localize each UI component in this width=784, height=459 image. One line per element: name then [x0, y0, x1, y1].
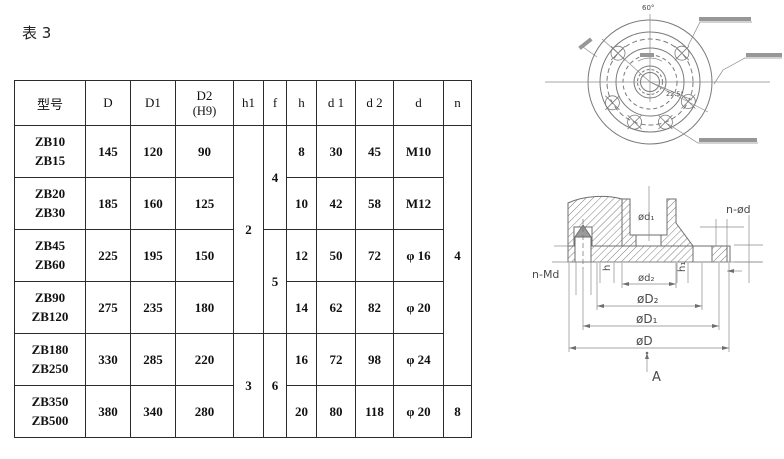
cell-d: φ 20 [394, 282, 444, 334]
angle-60-label: 60° [642, 4, 654, 12]
cell-D2: 280 [176, 386, 234, 438]
cell-f-merged: 6 [264, 334, 287, 438]
cell-h1-merged: 3 [234, 334, 264, 438]
cell-n-merged: 4 [444, 126, 472, 386]
table-row: ZB10 ZB15 145 120 90 2 4 8 30 45 M10 4 [15, 126, 472, 178]
col-header-n: n [444, 81, 472, 126]
cell-d: φ 20 [394, 386, 444, 438]
d2-dim-label: ød₂ [638, 273, 654, 284]
cell-f-merged: 4 [264, 126, 287, 230]
model-cell: ZB45 ZB60 [15, 230, 86, 282]
cell-D: 380 [86, 386, 131, 438]
table-row: ZB180 ZB250 330 285 220 3 6 16 72 98 φ 2… [15, 334, 472, 386]
cell-h: 10 [287, 178, 317, 230]
col-header-d2: d 2 [356, 81, 394, 126]
cell-h: 14 [287, 282, 317, 334]
cell-f-merged: 5 [264, 230, 287, 334]
cell-d2: 72 [356, 230, 394, 282]
cell-d: φ 24 [394, 334, 444, 386]
D1-dim-label: øD₁ [636, 312, 658, 326]
cell-d1: 30 [317, 126, 356, 178]
cell-D1: 285 [131, 334, 176, 386]
D-dim-label: øD [636, 334, 653, 348]
model-cell: ZB180 ZB250 [15, 334, 86, 386]
cell-D: 145 [86, 126, 131, 178]
leader-lines [668, 22, 782, 143]
col-header-f: f [264, 81, 287, 126]
model-name: ZB350 [15, 393, 85, 412]
cell-d: M10 [394, 126, 444, 178]
cell-d: M12 [394, 178, 444, 230]
cell-n: 8 [444, 386, 472, 438]
cell-h: 20 [287, 386, 317, 438]
model-name: ZB120 [15, 308, 85, 327]
cell-D: 225 [86, 230, 131, 282]
tapped-hole-label: n-Md [532, 268, 559, 281]
model-name: ZB15 [15, 152, 85, 171]
document-page: { "page": { "title": "表 3" }, "table": {… [0, 0, 784, 459]
model-name: ZB500 [15, 412, 85, 431]
model-name: ZB60 [15, 256, 85, 275]
col-header-d1: d 1 [317, 81, 356, 126]
cell-h: 16 [287, 334, 317, 386]
cell-h: 12 [287, 230, 317, 282]
col-header-model: 型号 [15, 81, 86, 126]
col-header-D2-main: D2 [176, 88, 233, 104]
col-header-D2-tol: (H9) [176, 104, 233, 119]
cell-D2: 90 [176, 126, 234, 178]
cell-D2: 180 [176, 282, 234, 334]
model-cell: ZB20 ZB30 [15, 178, 86, 230]
cell-D1: 235 [131, 282, 176, 334]
header-row: 型号 D D1 D2 (H9) h1 f h d 1 d 2 d n [15, 81, 472, 126]
cell-d: φ 16 [394, 230, 444, 282]
cell-d2: 98 [356, 334, 394, 386]
model-name: ZB30 [15, 204, 85, 223]
col-header-h: h [287, 81, 317, 126]
cell-D: 185 [86, 178, 131, 230]
model-name: ZB45 [15, 237, 85, 256]
col-header-D: D [86, 81, 131, 126]
col-header-D2: D2 (H9) [176, 81, 234, 126]
model-name: ZB180 [15, 341, 85, 360]
section-labels: ød₁ n-ød n-Md h h₁ ød₂ øD₂ øD₁ øD A [532, 203, 751, 385]
cell-d2: 118 [356, 386, 394, 438]
model-cell: ZB350 ZB500 [15, 386, 86, 438]
cell-D2: 220 [176, 334, 234, 386]
cell-h: 8 [287, 126, 317, 178]
cell-d2: 58 [356, 178, 394, 230]
model-name: ZB10 [15, 133, 85, 152]
cell-d1: 42 [317, 178, 356, 230]
angle-225-label: 22.5° [666, 90, 684, 98]
model-name: ZB90 [15, 289, 85, 308]
D2-dim-label: øD₂ [637, 292, 659, 306]
cell-D1: 160 [131, 178, 176, 230]
flange-face-drawing: 60° 22.5° [540, 0, 784, 160]
cell-D1: 195 [131, 230, 176, 282]
cell-d1: 72 [317, 334, 356, 386]
cell-D1: 120 [131, 126, 176, 178]
bore-diameter-label: ød₁ [638, 212, 654, 223]
cell-D: 275 [86, 282, 131, 334]
model-name: ZB250 [15, 360, 85, 379]
spec-table: 型号 D D1 D2 (H9) h1 f h d 1 d 2 d n ZB10 … [14, 80, 472, 438]
cell-d2: 82 [356, 282, 394, 334]
h1-dim-label: h₁ [677, 262, 688, 272]
view-direction-label: A [652, 370, 661, 385]
model-cell: ZB10 ZB15 [15, 126, 86, 178]
model-name: ZB20 [15, 185, 85, 204]
cell-D1: 340 [131, 386, 176, 438]
flange-section-drawing: ød₁ n-ød n-Md h h₁ ød₂ øD₂ øD₁ øD A [530, 183, 784, 413]
col-header-d: d [394, 81, 444, 126]
h-dim-label: h [602, 265, 613, 271]
cell-d1: 80 [317, 386, 356, 438]
col-header-D1: D1 [131, 81, 176, 126]
cell-d2: 45 [356, 126, 394, 178]
col-header-h1: h1 [234, 81, 264, 126]
cell-d1: 50 [317, 230, 356, 282]
rim-hole-label: n-ød [726, 203, 751, 216]
cell-D: 330 [86, 334, 131, 386]
cell-D2: 125 [176, 178, 234, 230]
cell-d1: 62 [317, 282, 356, 334]
cell-h1-merged: 2 [234, 126, 264, 334]
page-title: 表 3 [22, 22, 51, 43]
cell-D2: 150 [176, 230, 234, 282]
model-cell: ZB90 ZB120 [15, 282, 86, 334]
